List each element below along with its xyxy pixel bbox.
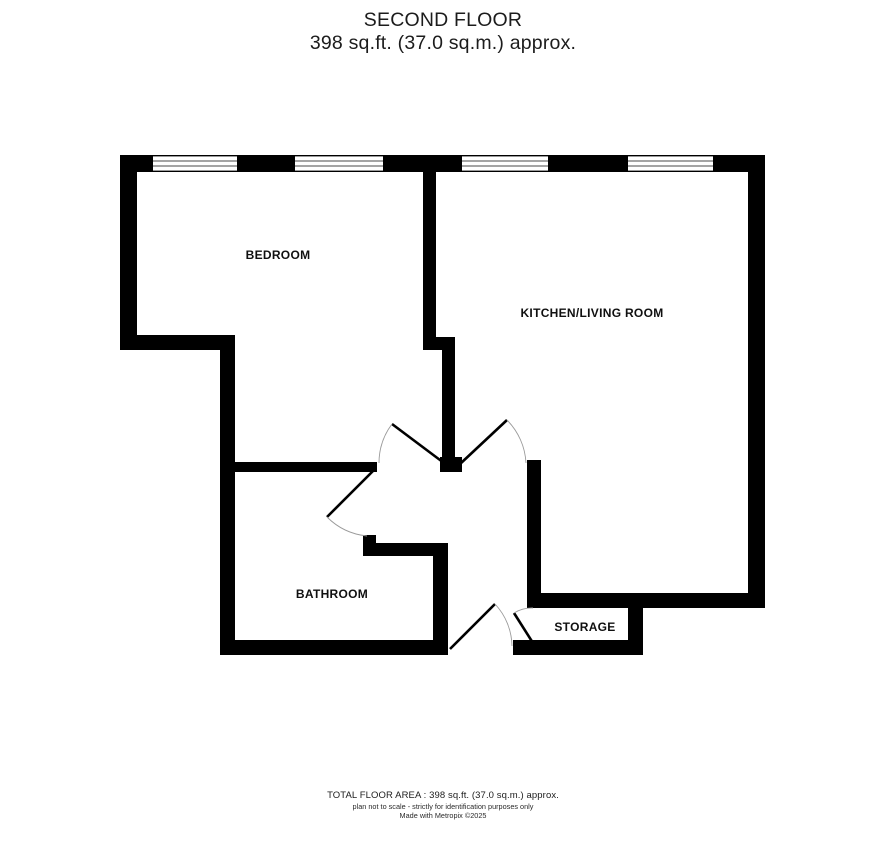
door-swing-bathroom	[327, 470, 374, 536]
wall-exterior-right	[748, 155, 765, 608]
walls	[120, 155, 765, 655]
door-swing-storage	[514, 608, 533, 643]
doors	[327, 420, 533, 649]
door-swing-bedroom	[379, 424, 444, 463]
door-swing-kitchen	[460, 420, 526, 464]
wall-divider-lower	[442, 337, 455, 463]
credit-text: Made with Metropix ©2025	[0, 811, 886, 820]
wall-exterior-left-lower	[220, 335, 235, 655]
wall-bathroom-top	[220, 462, 377, 472]
total-floor-area: TOTAL FLOOR AREA : 398 sq.ft. (37.0 sq.m…	[0, 790, 886, 802]
door-swing-entry	[450, 604, 512, 649]
wall-bathroom-bottom	[220, 640, 448, 655]
wall-divider-upper	[423, 165, 436, 350]
disclaimer-text: plan not to scale - strictly for identif…	[0, 802, 886, 811]
room-label-kitchen-living-room: KITCHEN/LIVING ROOM	[520, 306, 663, 320]
room-label-storage: STORAGE	[554, 620, 615, 634]
wall-exterior-step	[120, 335, 235, 350]
window	[153, 156, 237, 170]
window	[628, 156, 713, 170]
wall-bathroom-right	[433, 543, 448, 655]
wall-kitchen-bottom	[527, 593, 765, 608]
wall-exterior-left-upper	[120, 155, 137, 350]
floor-plan-drawing: BEDROOM KITCHEN/LIVING ROOM BATHROOM STO…	[0, 0, 886, 847]
room-label-bathroom: BATHROOM	[296, 587, 368, 601]
floorplan-page: SECOND FLOOR 398 sq.ft. (37.0 sq.m.) app…	[0, 0, 886, 847]
wall-divider-stub	[440, 457, 462, 472]
window	[295, 156, 383, 170]
plan-footer: TOTAL FLOOR AREA : 398 sq.ft. (37.0 sq.m…	[0, 790, 886, 820]
window	[462, 156, 548, 170]
room-label-bedroom: BEDROOM	[246, 248, 311, 262]
wall-kitchen-left	[527, 460, 541, 607]
